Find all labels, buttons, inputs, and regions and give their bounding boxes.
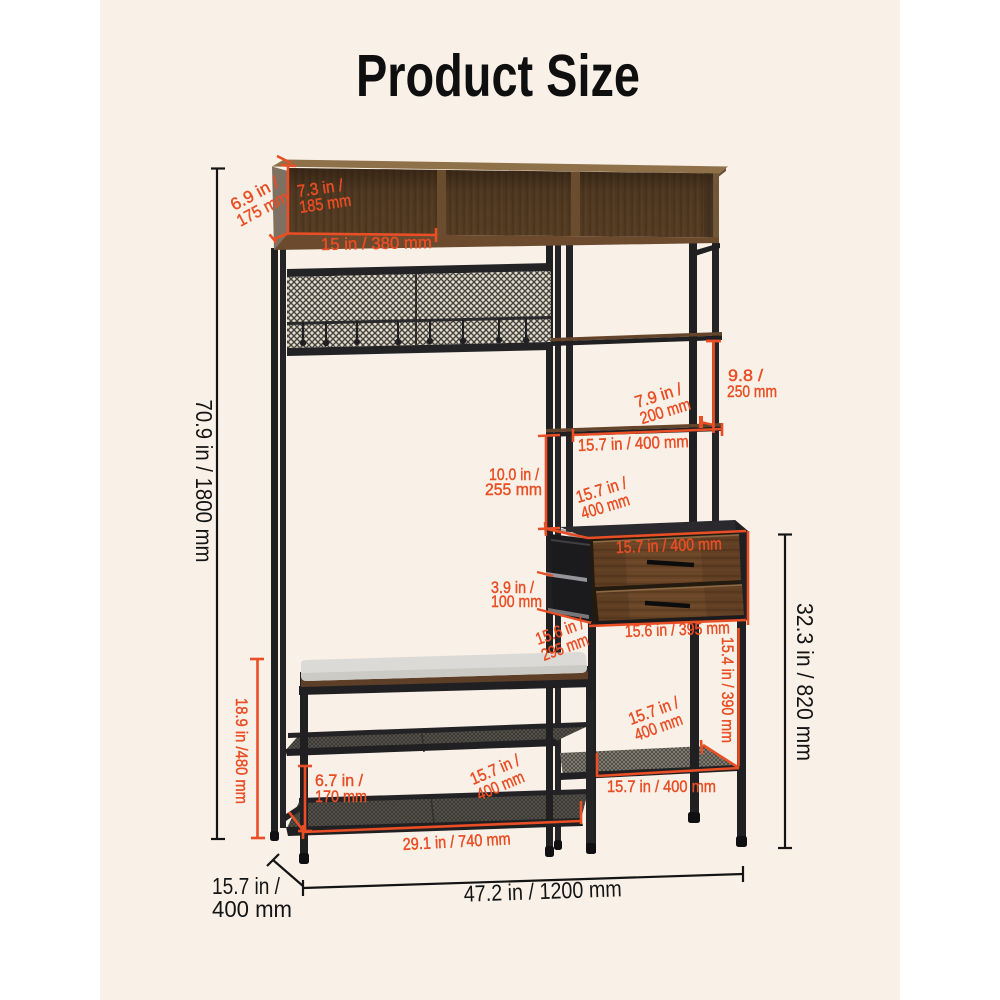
svg-text:255 mm: 255 mm (485, 480, 542, 499)
svg-text:15.4 in / 390 mm: 15.4 in / 390 mm (718, 637, 737, 743)
svg-text:400 mm: 400 mm (212, 896, 292, 922)
svg-text:15.7 in / 400 mm: 15.7 in / 400 mm (615, 534, 722, 557)
svg-text:15.7 in / 400 mm: 15.7 in / 400 mm (607, 777, 716, 796)
svg-text:70.9 in / 1800 mm: 70.9 in / 1800 mm (191, 400, 217, 563)
svg-text:18.9 in /480 mm: 18.9 in /480 mm (232, 698, 251, 804)
svg-text:32.3 in / 820 mm: 32.3 in / 820 mm (792, 603, 818, 761)
svg-text:15.7 in / 400 mm: 15.7 in / 400 mm (577, 432, 689, 455)
svg-text:Product Size: Product Size (356, 43, 640, 109)
svg-text:15.6 in / 395 mm: 15.6 in / 395 mm (624, 618, 730, 641)
svg-text:250 mm: 250 mm (727, 382, 777, 401)
svg-text:100 mm: 100 mm (491, 592, 542, 611)
svg-text:15 in / 380 mm: 15 in / 380 mm (321, 233, 432, 254)
svg-text:47.2 in / 1200 mm: 47.2 in / 1200 mm (463, 875, 622, 906)
svg-text:170 mm: 170 mm (315, 787, 367, 806)
